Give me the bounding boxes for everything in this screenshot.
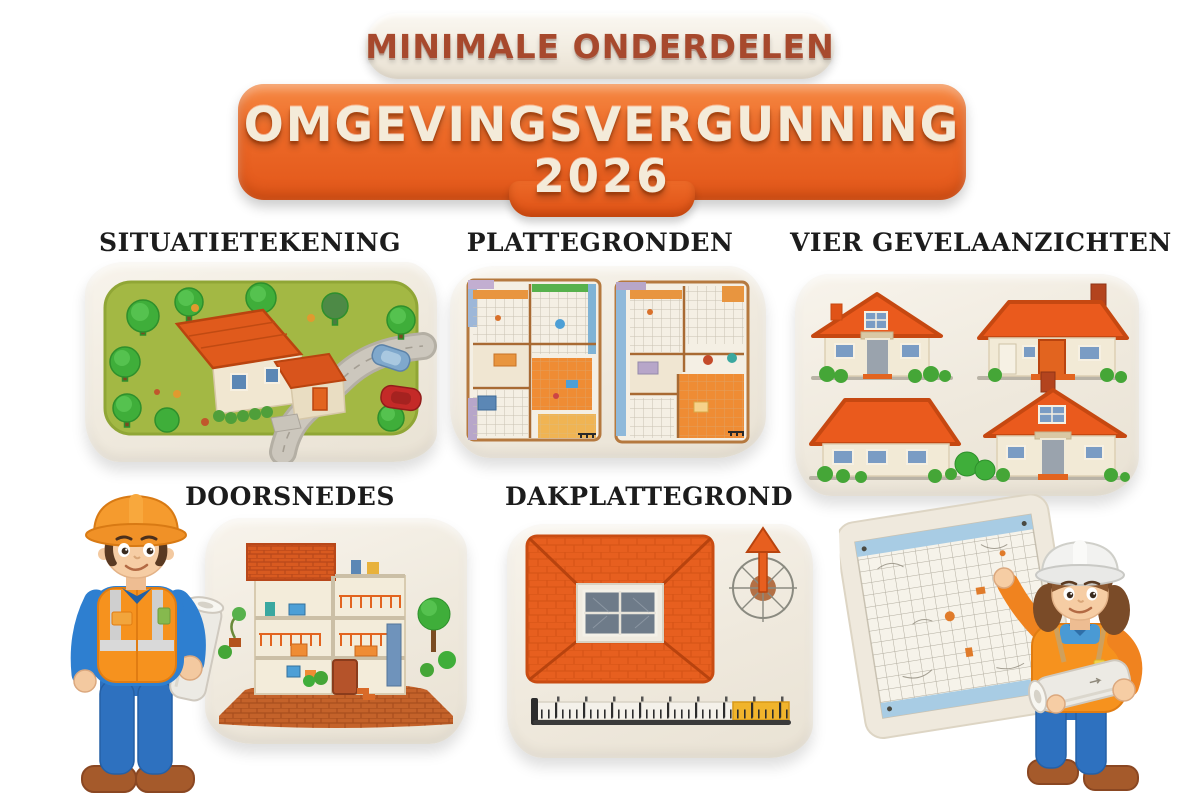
floor-plan-left	[468, 280, 600, 440]
subtitle-text: MINIMALE ONDERDELEN	[365, 27, 835, 66]
doorsnedes-illustration	[205, 518, 467, 744]
elevation-house-3	[809, 400, 961, 483]
page: MINIMALE ONDERDELEN OMGEVINGSVERGUNNING …	[0, 0, 1200, 800]
scale-ruler	[531, 698, 791, 725]
card-situatietekening	[85, 262, 437, 462]
floor-plan-right	[616, 282, 748, 442]
center-trees	[955, 452, 995, 480]
card-doorsnedes	[205, 518, 467, 744]
north-compass	[729, 528, 797, 622]
elevation-house-2	[977, 284, 1127, 383]
construction-worker-female	[972, 532, 1186, 800]
gevelaanzichten-illustration	[795, 274, 1139, 496]
roof-plan	[527, 536, 713, 682]
card-dakplattegrond	[507, 524, 813, 758]
title-text: OMGEVINGSVERGUNNING	[238, 98, 966, 153]
title-year: 2026	[238, 150, 966, 203]
label-situatietekening: SITUATIETEKENING	[85, 228, 415, 257]
construction-worker-male	[38, 482, 236, 800]
title-banner: OMGEVINGSVERGUNNING 2026	[238, 84, 966, 200]
label-dakplattegrond: DAKPLATTEGROND	[505, 482, 785, 511]
hard-hat-orange	[86, 494, 186, 546]
plattegronden-illustration	[450, 266, 766, 458]
hard-hat-white	[1036, 540, 1124, 585]
card-plattegronden	[450, 266, 766, 458]
elevation-house-1	[811, 294, 953, 383]
card-gevelaanzichten	[795, 274, 1139, 496]
dakplattegrond-illustration	[507, 524, 813, 758]
subtitle-banner: MINIMALE ONDERDELEN	[365, 13, 835, 79]
label-plattegronden: PLATTEGRONDEN	[450, 228, 750, 257]
label-gevelaanzichten: VIER GEVELAANZICHTEN	[790, 228, 1135, 257]
situatietekening-illustration	[85, 262, 437, 462]
elevation-house-4	[983, 372, 1130, 482]
